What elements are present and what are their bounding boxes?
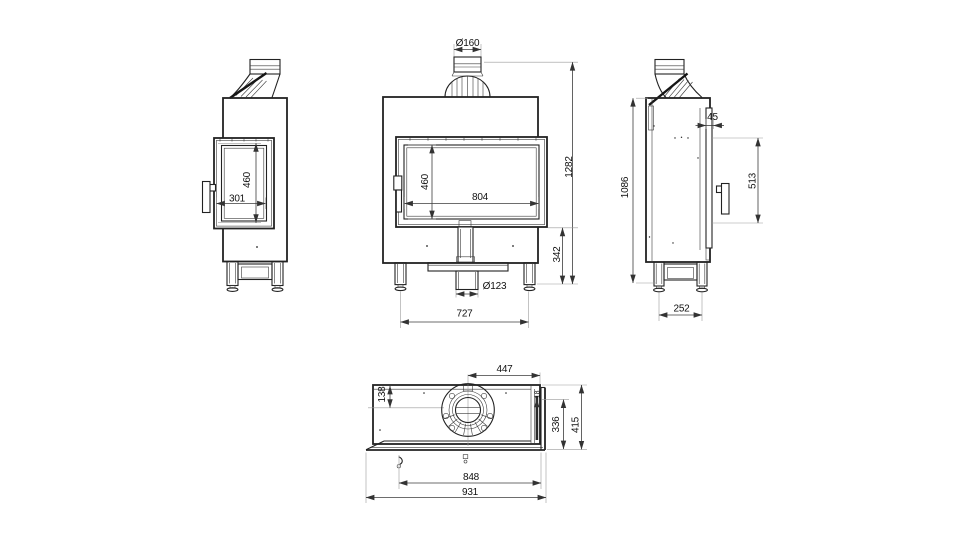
right-side-view: 1086 45 513 252 (620, 60, 763, 322)
front-frame-edge (706, 108, 712, 260)
dim-label-d160: Ø160 (456, 38, 480, 49)
rivet-dot (649, 236, 650, 237)
dim-flue-diameter: Ø160 (454, 38, 481, 57)
center-column (456, 227, 474, 263)
dim-right-overall-height: 1086 (620, 98, 656, 283)
front-view: Ø160 460 804 1282 342 (383, 38, 578, 328)
dim-label-1282: 1282 (564, 156, 575, 178)
rivet-dot (672, 242, 673, 243)
convection-channel (649, 106, 654, 130)
dim-label-342: 342 (552, 246, 563, 263)
dim-label-931: 931 (462, 487, 479, 498)
dim-label-447: 447 (496, 364, 513, 375)
dim-label-301: 301 (229, 194, 246, 205)
dim-flue-to-right: 447 (468, 364, 540, 384)
legs (395, 263, 535, 291)
legs (227, 262, 283, 292)
rivet-dot (379, 429, 381, 431)
dim-label-804: 804 (472, 192, 489, 203)
dim-label-336: 336 (551, 416, 562, 433)
dim-label-45: 45 (707, 112, 718, 123)
dim-label-138: 138 (377, 386, 388, 403)
dim-leg-spacing-side: 252 (659, 292, 702, 321)
dim-label-18: 18 (535, 390, 542, 398)
rivet-dot (423, 392, 425, 394)
dim-overall-depth: 415 (542, 385, 587, 449)
dim-label-460-front: 460 (420, 173, 431, 190)
dim-label-848: 848 (463, 472, 480, 483)
top-view: 447 138 18 336 415 848 (366, 364, 587, 503)
flue-outlet (445, 57, 490, 97)
body-outline (646, 98, 710, 262)
dim-body-width: 848 (399, 453, 541, 490)
door-handle (717, 184, 730, 215)
dim-leg-spacing-front: 727 (401, 292, 529, 329)
screw-dot (256, 246, 258, 248)
drawing-svg: 460 301 (0, 0, 970, 546)
screw-dot (512, 245, 514, 247)
dim-label-415: 415 (571, 416, 582, 433)
flue-elbow (230, 60, 280, 99)
rivet-dot (687, 137, 688, 138)
rivet-dot (505, 392, 507, 394)
legs (654, 262, 708, 292)
technical-drawing: 460 301 (0, 0, 970, 546)
latch-pin (463, 455, 468, 464)
screw-dot (426, 245, 428, 247)
rivet-dot (674, 137, 675, 138)
dim-label-1086: 1086 (620, 176, 631, 198)
dim-label-727: 727 (456, 309, 473, 320)
dim-label-513: 513 (748, 172, 759, 189)
cold-hand-hook (397, 457, 402, 468)
dim-label-460-left: 460 (242, 171, 253, 188)
dim-plinth-height: 342 (548, 228, 578, 284)
rivet-dot (681, 137, 682, 138)
door (396, 137, 547, 227)
left-side-view: 460 301 (203, 60, 288, 292)
dim-door-height-side: 513 (712, 138, 763, 223)
dim-label-d123: Ø123 (483, 281, 507, 292)
dim-body-depth: 336 (542, 400, 569, 449)
dim-label-252: 252 (673, 304, 690, 315)
rivet-dot (697, 157, 698, 158)
door-handle (394, 176, 402, 212)
rivet-dot (653, 125, 654, 126)
dim-overall-width: 931 (366, 453, 546, 504)
